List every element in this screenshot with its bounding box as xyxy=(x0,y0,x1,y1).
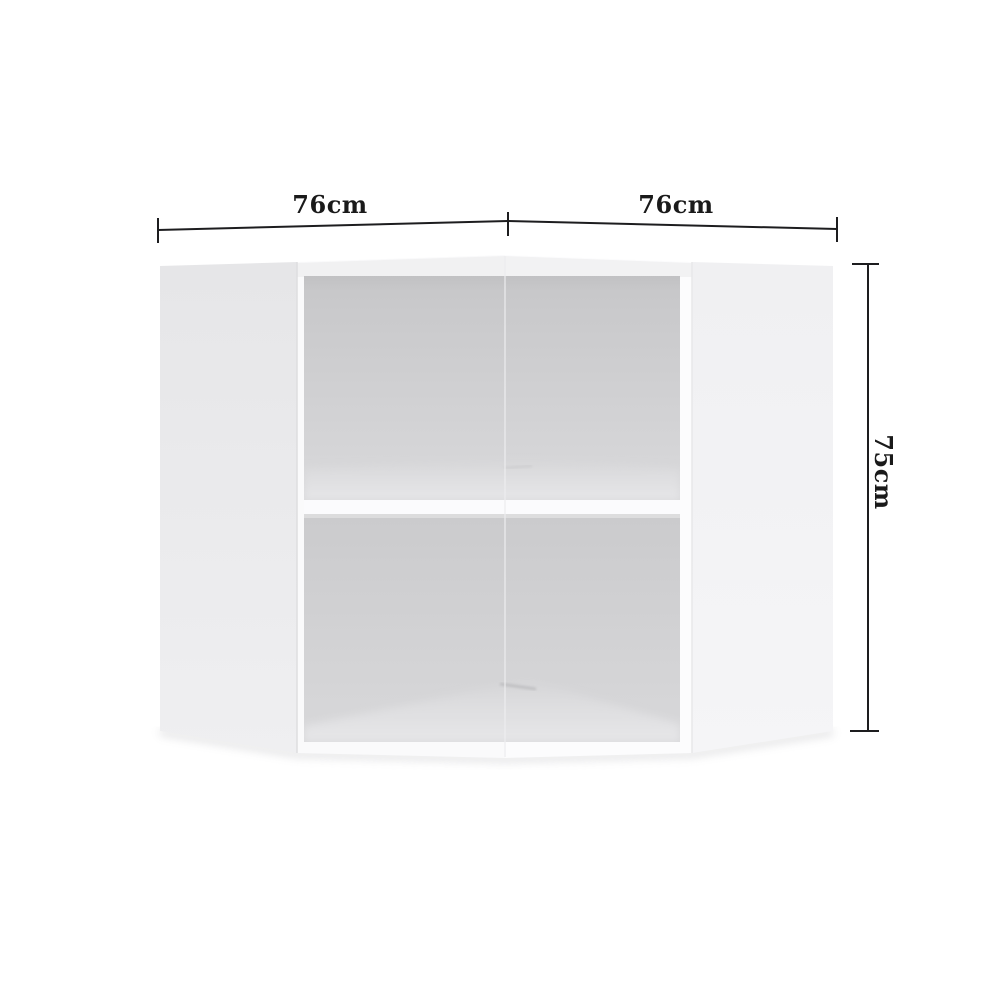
width-label-left: 76cm xyxy=(292,190,367,219)
lower-shelf-compartment xyxy=(304,518,680,742)
height-label: 75cm xyxy=(869,434,898,509)
width-left-segment xyxy=(158,221,508,230)
width-right-segment xyxy=(508,221,837,229)
middle-shelf-front-edge xyxy=(304,500,680,514)
cabinet-left-side-panel xyxy=(160,262,297,753)
diagram-canvas: 76cm 76cm 75cm xyxy=(0,0,1000,1000)
middle-shelf xyxy=(304,500,680,518)
dimension-diagram: 76cm 76cm 75cm xyxy=(0,0,1000,1000)
upper-shelf-surface xyxy=(304,460,680,500)
cabinet-top-rail xyxy=(297,256,692,277)
cabinet xyxy=(160,255,833,758)
width-dimension-line xyxy=(158,212,837,243)
upper-shelf-compartment xyxy=(304,276,680,500)
width-label-right: 76cm xyxy=(638,190,713,219)
cabinet-right-side-panel xyxy=(692,262,833,753)
middle-shelf-shadow xyxy=(304,514,680,518)
